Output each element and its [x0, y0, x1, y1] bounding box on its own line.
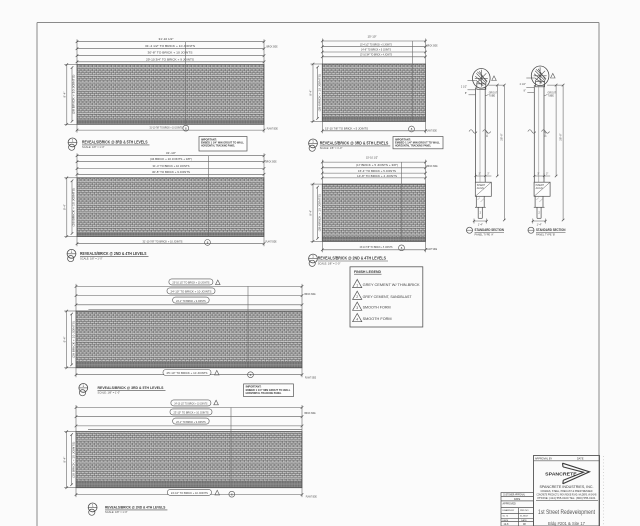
svg-text:DATE: DATE	[577, 458, 584, 461]
svg-text:13'-10 3/4" TO BRICK + 4 JOINT: 13'-10 3/4" TO BRICK + 4 JOINTS	[360, 53, 392, 57]
svg-text:31'-4" TO BRICK + 10 JOINTS: 31'-4" TO BRICK + 10 JOINTS	[153, 164, 190, 168]
svg-text:2 1/2": 2 1/2"	[520, 83, 526, 86]
svg-text:SCALE: 1/8" = 1'-0": SCALE: 1/8" = 1'-0"	[80, 257, 103, 261]
svg-text:(28 BRICK + 10 JOINTS): (28 BRICK + 10 JOINTS)	[317, 74, 321, 112]
svg-text:(34 BRICK + 10 JOINTS + 3/8"): (34 BRICK + 10 JOINTS + 3/8")	[150, 157, 192, 161]
svg-text:HORIZONTAL TRACKING PANEL: HORIZONTAL TRACKING PANEL	[201, 144, 235, 148]
svg-text:1: 1	[71, 250, 73, 254]
svg-text:1: 1	[72, 139, 74, 143]
svg-text:SMOOTH FORM: SMOOTH FORM	[363, 306, 391, 310]
svg-text:8": 8"	[465, 92, 467, 95]
svg-text:SPANCRETE: SPANCRETE	[545, 471, 577, 476]
svg-text:15'-10 7/8" TO BRICK + 5 JOINT: 15'-10 7/8" TO BRICK + 5 JOINTS	[360, 245, 393, 249]
svg-text:2 1/2": 2 1/2"	[461, 85, 467, 88]
svg-text:15'-4 1/2" TO BRICK + 5 JOINTS: 15'-4 1/2" TO BRICK + 5 JOINTS	[360, 43, 392, 47]
svg-text:(28 BRICK + 10 JOINTS): (28 BRICK + 10 JOINTS)	[71, 441, 75, 477]
svg-text:DATE: DATE	[521, 519, 527, 522]
svg-text:TUBE: TUBE	[548, 95, 555, 98]
svg-text:9'-4": 9'-4"	[309, 90, 313, 96]
svg-text:23'-10" TO BRICK + 10 JOINTS: 23'-10" TO BRICK + 10 JOINTS	[174, 411, 209, 415]
svg-text:9'-4": 9'-4"	[62, 336, 66, 342]
svg-text:9'-4": 9'-4"	[544, 131, 548, 137]
svg-text:31'-10": 31'-10"	[166, 151, 176, 155]
svg-text:SCALE: 1/8" = 1'-0": SCALE: 1/8" = 1'-0"	[318, 261, 341, 265]
svg-text:(28 BRICK + 10 JOINTS): (28 BRICK + 10 JOINTS)	[317, 194, 321, 231]
svg-text:24'-10" TO BRICK + 10 JOINTS: 24'-10" TO BRICK + 10 JOINTS	[171, 290, 212, 294]
svg-text:PHONE: (414) 555-0100 TEL: (: PHONE: (414) 555-0100 TEL: (800) 555-010…	[538, 498, 597, 500]
svg-text:30'-8" TO BRICK + 9 JOINTS: 30'-8" TO BRICK + 9 JOINTS	[152, 170, 190, 174]
svg-text:31-B617: 31-B617	[520, 516, 529, 518]
svg-text:APPROVAL BY: APPROVAL BY	[535, 458, 553, 461]
svg-text:BRICK SIDE: BRICK SIDE	[305, 412, 316, 415]
svg-text:APPROVED: APPROVED	[503, 503, 517, 506]
svg-text:CUSTOMER APPROVAL: CUSTOMER APPROVAL	[503, 494, 526, 497]
svg-text:9'-4": 9'-4"	[485, 131, 489, 137]
svg-text:FINISH LEGEND: FINISH LEGEND	[354, 269, 381, 274]
svg-text:15'-4" TO BRICK + 5 JOINTS: 15'-4" TO BRICK + 5 JOINTS	[358, 169, 396, 173]
svg-text:1'-4": 1'-4"	[478, 223, 483, 227]
svg-text:(28 BRICK + 10 JOINTS): (28 BRICK + 10 JOINTS)	[71, 321, 75, 358]
svg-text:(28 BRICK + 10 JOINTS): (28 BRICK + 10 JOINTS)	[72, 74, 76, 114]
svg-text:14'-8" TO BRICK + 5 JOINTS: 14'-8" TO BRICK + 5 JOINTS	[361, 48, 391, 52]
svg-text:3": 3"	[546, 173, 548, 176]
svg-text:TUBE: TUBE	[489, 95, 496, 98]
svg-text:DATE: DATE	[514, 498, 521, 501]
svg-text:REVEALS/BRICK @ 2ND & 4TH LEVE: REVEALS/BRICK @ 2ND & 4TH LEVELS	[105, 505, 166, 509]
svg-text:BRICK SIDE: BRICK SIDE	[427, 45, 438, 48]
svg-text:BRICK SIDE: BRICK SIDE	[266, 160, 277, 163]
svg-text:25'-10 1/2" TO BRICK + 10 JOIN: 25'-10 1/2" TO BRICK + 10 JOINTS	[172, 281, 209, 285]
svg-text:DRAWN BY: DRAWN BY	[503, 509, 515, 512]
svg-text:PANEL TYPE 'A': PANEL TYPE 'A'	[475, 232, 495, 236]
svg-text:24'-1" TO BRICK + 9 JOINTS: 24'-1" TO BRICK + 9 JOINTS	[176, 299, 206, 303]
svg-text:28'-6": 28'-6"	[500, 133, 504, 140]
svg-text:STANDARD SECTION: STANDARD SECTION	[536, 228, 566, 232]
svg-text:15'-10 7/8" TO BRICK + 5 JOINT: 15'-10 7/8" TO BRICK + 5 JOINTS	[325, 127, 368, 131]
svg-text:24'-10" TO BRICK + 10 JOINTS: 24'-10" TO BRICK + 10 JOINTS	[171, 491, 208, 495]
svg-text:31'-10 1/2": 31'-10 1/2"	[159, 37, 174, 41]
svg-text:4: 4	[356, 318, 358, 322]
svg-text:CRANES, STEEL, PRECAST & PREST: CRANES, STEEL, PRECAST & PRESTRESSED	[541, 490, 593, 493]
svg-text:8": 8"	[524, 89, 526, 92]
svg-text:2: 2	[356, 295, 358, 299]
svg-text:SCALE: 1/8" = 1'-0": SCALE: 1/8" = 1'-0"	[320, 146, 343, 150]
svg-text:SL #2: SL #2	[503, 516, 509, 518]
svg-text:PLANT SIDE: PLANT SIDE	[305, 377, 316, 380]
svg-text:ALIGN: ALIGN	[477, 187, 484, 190]
svg-text:PLANT SIDE: PLANT SIDE	[267, 128, 278, 131]
svg-text:1: 1	[356, 283, 358, 287]
svg-text:SCALE: 1/8" = 1'-0": SCALE: 1/8" = 1'-0"	[98, 391, 121, 395]
svg-text:HORIZONTAL TRACKING PANEL: HORIZONTAL TRACKING PANEL	[246, 391, 282, 395]
svg-text:PLANT SIDE: PLANT SIDE	[306, 496, 317, 499]
svg-text:BRICK SIDE: BRICK SIDE	[305, 293, 316, 296]
svg-text:GREY CEMENT W/ THIN-BRICK: GREY CEMENT W/ THIN-BRICK	[363, 283, 421, 287]
svg-text:SPANCRETE INDUSTRIES, INC.: SPANCRETE INDUSTRIES, INC.	[540, 484, 594, 489]
svg-text:9'-4": 9'-4"	[62, 457, 66, 463]
svg-text:STANDARD SECTION: STANDARD SECTION	[475, 228, 505, 232]
svg-text:PLANT SIDE: PLANT SIDE	[266, 241, 277, 244]
svg-text:1: 1	[312, 140, 314, 144]
svg-text:INSERT: INSERT	[536, 185, 545, 187]
svg-text:GREY CEMENT, SANDBLAST: GREY CEMENT, SANDBLAST	[363, 295, 412, 299]
svg-text:Bldg #201 & Site 17: Bldg #201 & Site 17	[548, 521, 586, 526]
svg-text:1st Street Redevelopment: 1st Street Redevelopment	[538, 509, 595, 516]
svg-text:9'-4": 9'-4"	[62, 91, 66, 97]
svg-text:REVEALS/BRICK @ 3RD & 5TH LEVE: REVEALS/BRICK @ 3RD & 5TH LEVELS	[320, 140, 389, 145]
svg-text:25'-10" TO BRICK + 10 JOINTS: 25'-10" TO BRICK + 10 JOINTS	[167, 371, 208, 375]
svg-text:(28 BRICK + 10 JOINTS): (28 BRICK + 10 JOINTS)	[72, 188, 76, 227]
svg-text:3": 3"	[487, 173, 489, 176]
svg-text:(17 BRICK + 5 JOINTS + 3/8"): (17 BRICK + 5 JOINTS + 3/8")	[356, 163, 398, 167]
svg-text:3": 3"	[537, 173, 539, 176]
svg-text:DATE: DATE	[503, 519, 509, 522]
svg-text:31'-10 7/8" TO BRICK + 10 JOIN: 31'-10 7/8" TO BRICK + 10 JOINTS	[143, 239, 183, 243]
svg-text:PANEL TYPE 'B': PANEL TYPE 'B'	[536, 232, 556, 236]
svg-text:1'-4": 1'-4"	[537, 223, 542, 227]
svg-text:REVEALS/BRICK @ 2ND & 4TH LEVE: REVEALS/BRICK @ 2ND & 4TH LEVELS	[80, 251, 147, 256]
svg-text:14'-8" TO BRICK + 4 JOINTS: 14'-8" TO BRICK + 4 JOINTS	[357, 174, 397, 178]
svg-text:29'-10 3/4" TO BRICK + 9 JOINT: 29'-10 3/4" TO BRICK + 9 JOINTS	[146, 57, 194, 61]
svg-text:23'-1" TO BRICK + 9 JOINTS: 23'-1" TO BRICK + 9 JOINTS	[176, 420, 206, 424]
svg-text:9'-4": 9'-4"	[62, 204, 66, 210]
svg-text:SMOOTH FORM: SMOOTH FORM	[363, 317, 392, 321]
svg-text:PLANT SIDE: PLANT SIDE	[426, 248, 437, 251]
svg-text:REVEALS/BRICK @ 3RD & 5TH LEVE: REVEALS/BRICK @ 3RD & 5TH LEVELS	[98, 386, 165, 390]
svg-text:28'-6": 28'-6"	[558, 133, 562, 140]
svg-text:BRICK SIDE: BRICK SIDE	[267, 46, 278, 49]
svg-text:PLANT SIDE: PLANT SIDE	[426, 130, 437, 133]
svg-text:15'-10 1/2": 15'-10 1/2"	[366, 156, 378, 160]
svg-text:31'-4 1/2" TO BRICK + 10 JOINT: 31'-4 1/2" TO BRICK + 10 JOINTS	[145, 44, 195, 48]
svg-text:SCALE: 1/8" = 1'-0": SCALE: 1/8" = 1'-0"	[82, 145, 105, 149]
svg-text:CONCRETE PRODUCTS, IRON RIDGE: CONCRETE PRODUCTS, IRON RIDGE ROAD, VALD…	[537, 494, 598, 497]
svg-text:BRICK SIDE: BRICK SIDE	[427, 165, 438, 168]
svg-text:1: 1	[82, 384, 84, 388]
svg-text:31'-10 7/8" TO BRICK + 10 JOIN: 31'-10 7/8" TO BRICK + 10 JOINTS	[150, 126, 183, 130]
svg-text:SCALE: 1/8" = 1'-0": SCALE: 1/8" = 1'-0"	[105, 510, 128, 514]
svg-text:24'-10 1/2" TO BRICK + 10 JOIN: 24'-10 1/2" TO BRICK + 10 JOINTS	[174, 402, 207, 406]
svg-text:ALIGN: ALIGN	[536, 187, 543, 190]
svg-text:3: 3	[356, 306, 358, 310]
svg-text:15'-10": 15'-10"	[368, 35, 377, 39]
svg-text:9'-4": 9'-4"	[309, 210, 313, 216]
svg-text:3": 3"	[479, 173, 481, 176]
svg-text:PRD NO: PRD NO	[520, 510, 529, 512]
svg-text:HORIZONTAL TRACKING PANEL: HORIZONTAL TRACKING PANEL	[395, 144, 431, 148]
svg-text:1: 1	[312, 255, 314, 259]
svg-text:REVEALS/BRICK @ 3RD & 5TH LEVE: REVEALS/BRICK @ 3RD & 5TH LEVELS	[82, 139, 148, 144]
svg-text:REVEALS/BRICK @ 2ND & 4TH LEVE: REVEALS/BRICK @ 2ND & 4TH LEVELS	[318, 256, 386, 261]
svg-text:1: 1	[92, 504, 94, 508]
svg-text:INSERT: INSERT	[477, 185, 486, 187]
